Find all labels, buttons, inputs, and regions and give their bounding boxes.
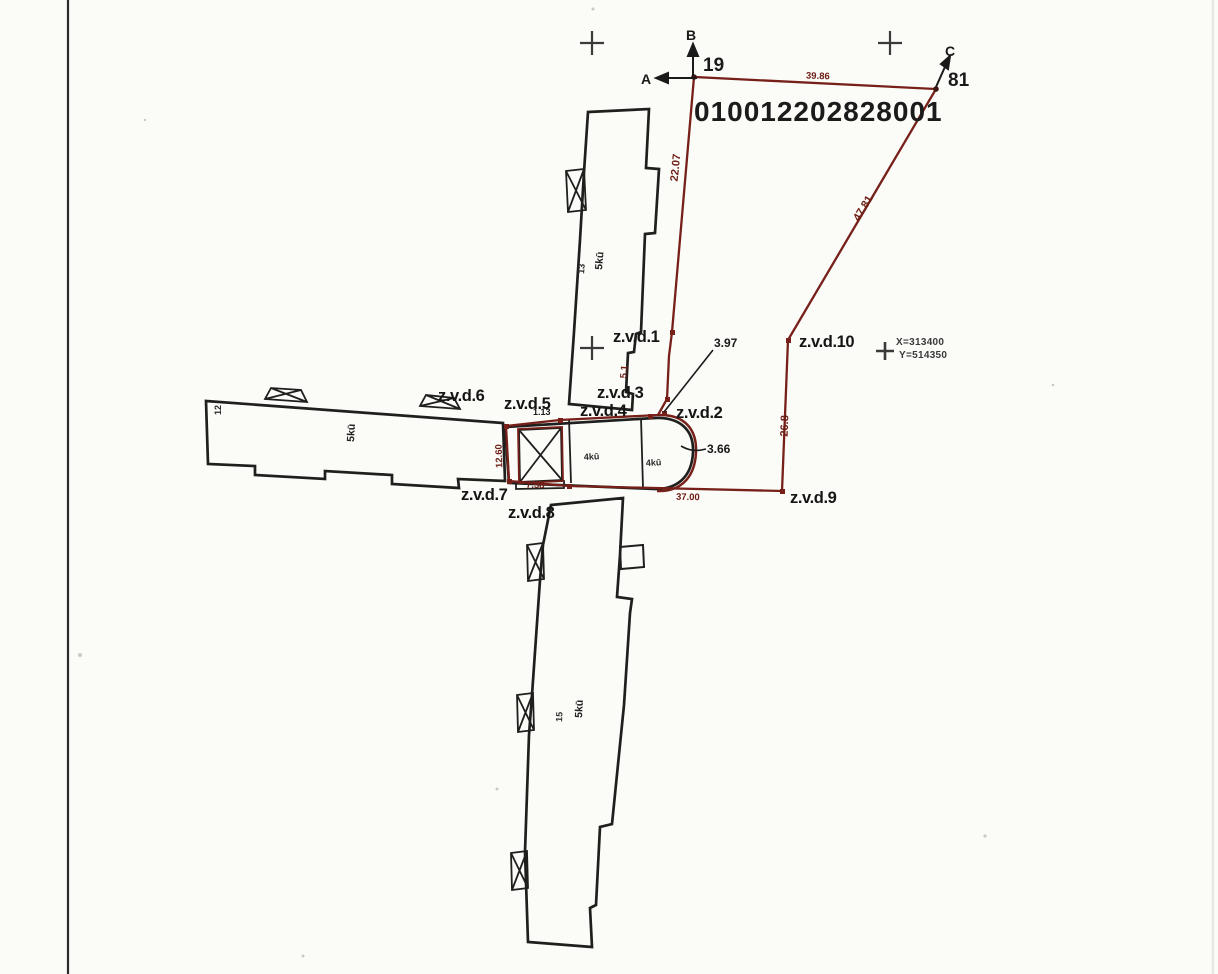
boundary-point-tick [780, 489, 785, 494]
parcel-number: 010012202828001 [694, 96, 943, 127]
building-south-outline [525, 498, 632, 947]
arrowhead-icon [688, 44, 698, 56]
parcel-boundary [506, 77, 936, 491]
building-number: 13 [576, 263, 587, 274]
building-type: 5kū [345, 423, 358, 442]
corner-label-c: C [945, 43, 955, 59]
building-west-outline [206, 401, 505, 488]
dimension: 7.58 [526, 480, 545, 492]
grid-x-coordinate: X=313400 [896, 337, 944, 348]
point-label: z.v.d.10 [799, 333, 854, 351]
boundary-point-tick [567, 484, 572, 489]
dimension: 26.8 [779, 415, 792, 437]
point-label: z.v.d.7 [461, 486, 508, 504]
building-type: 4kū [584, 451, 600, 462]
building-type: 4kū [646, 457, 662, 468]
grid-cross-icon [580, 336, 604, 360]
point-label: z.v.d.4 [580, 402, 628, 420]
direction-arrows [656, 44, 950, 87]
grid-cross-icon [876, 342, 894, 360]
boundary-point-labels: z.v.d.1 z.v.d.2 z.v.d.3 z.v.d.4 z.v.d.5 … [438, 328, 854, 522]
point-number-19: 19 [703, 55, 724, 76]
leader-lines [664, 350, 713, 450]
building-type: 5kū [593, 251, 607, 270]
building-type: 5kū [573, 699, 586, 718]
dimension: 3.66 [707, 442, 731, 456]
stairwell-icon [519, 428, 562, 482]
dimension: 37.00 [676, 492, 700, 503]
building-north-outline [569, 109, 659, 410]
scan-specks [78, 8, 1054, 958]
dimension: 39.86 [806, 71, 830, 83]
dimension: 22.07 [669, 153, 684, 182]
point-number-81: 81 [948, 70, 970, 91]
boundary-point-tick [558, 418, 563, 423]
building-south-annex [620, 545, 644, 569]
boundary-point-tick [670, 330, 675, 335]
point-label: z.v.d.8 [508, 504, 555, 522]
building-number: 15 [554, 712, 565, 723]
grid-cross-icon [878, 31, 902, 55]
boundary-line [506, 77, 936, 491]
boundary-point-tick [786, 338, 791, 343]
dimension: 3.97 [714, 336, 738, 350]
corner-label-b: B [686, 27, 696, 43]
boundary-point-tick [504, 424, 509, 429]
dimension: 12.60 [494, 444, 506, 468]
point-label: z.v.d.2 [676, 404, 723, 422]
scanned-survey-plan-page: X=313400 Y=514350 13 5kū 12 5kū 4kū 4kū … [0, 0, 1218, 974]
dimension: 47.81 [851, 194, 875, 224]
point-label: z.v.d.1 [613, 328, 660, 346]
grid-y-coordinate: Y=514350 [899, 350, 947, 361]
cadastral-plan-drawing: X=313400 Y=514350 13 5kū 12 5kū 4kū 4kū … [0, 0, 1218, 974]
boundary-point-tick [507, 479, 512, 484]
point-label: z.v.d.3 [597, 384, 644, 402]
entrance-icon [265, 388, 307, 402]
corner-label-a: A [641, 71, 651, 87]
dimension: 5.1 [618, 364, 630, 379]
boundary-point-tick [648, 414, 653, 419]
point-label: z.v.d.9 [790, 489, 837, 507]
building-number: 12 [213, 405, 223, 415]
arrowhead-icon [656, 73, 668, 83]
dimension: 1.13 [533, 407, 551, 417]
corner-point-c [933, 86, 939, 92]
boundary-arc-overlay [657, 415, 696, 491]
leader-3-97 [664, 350, 713, 412]
buildings [206, 109, 693, 947]
point-label: z.v.d.6 [438, 387, 485, 405]
grid-cross-icon [580, 31, 604, 55]
boundary-point-tick [665, 397, 670, 402]
building-middle-dividers [569, 418, 643, 488]
